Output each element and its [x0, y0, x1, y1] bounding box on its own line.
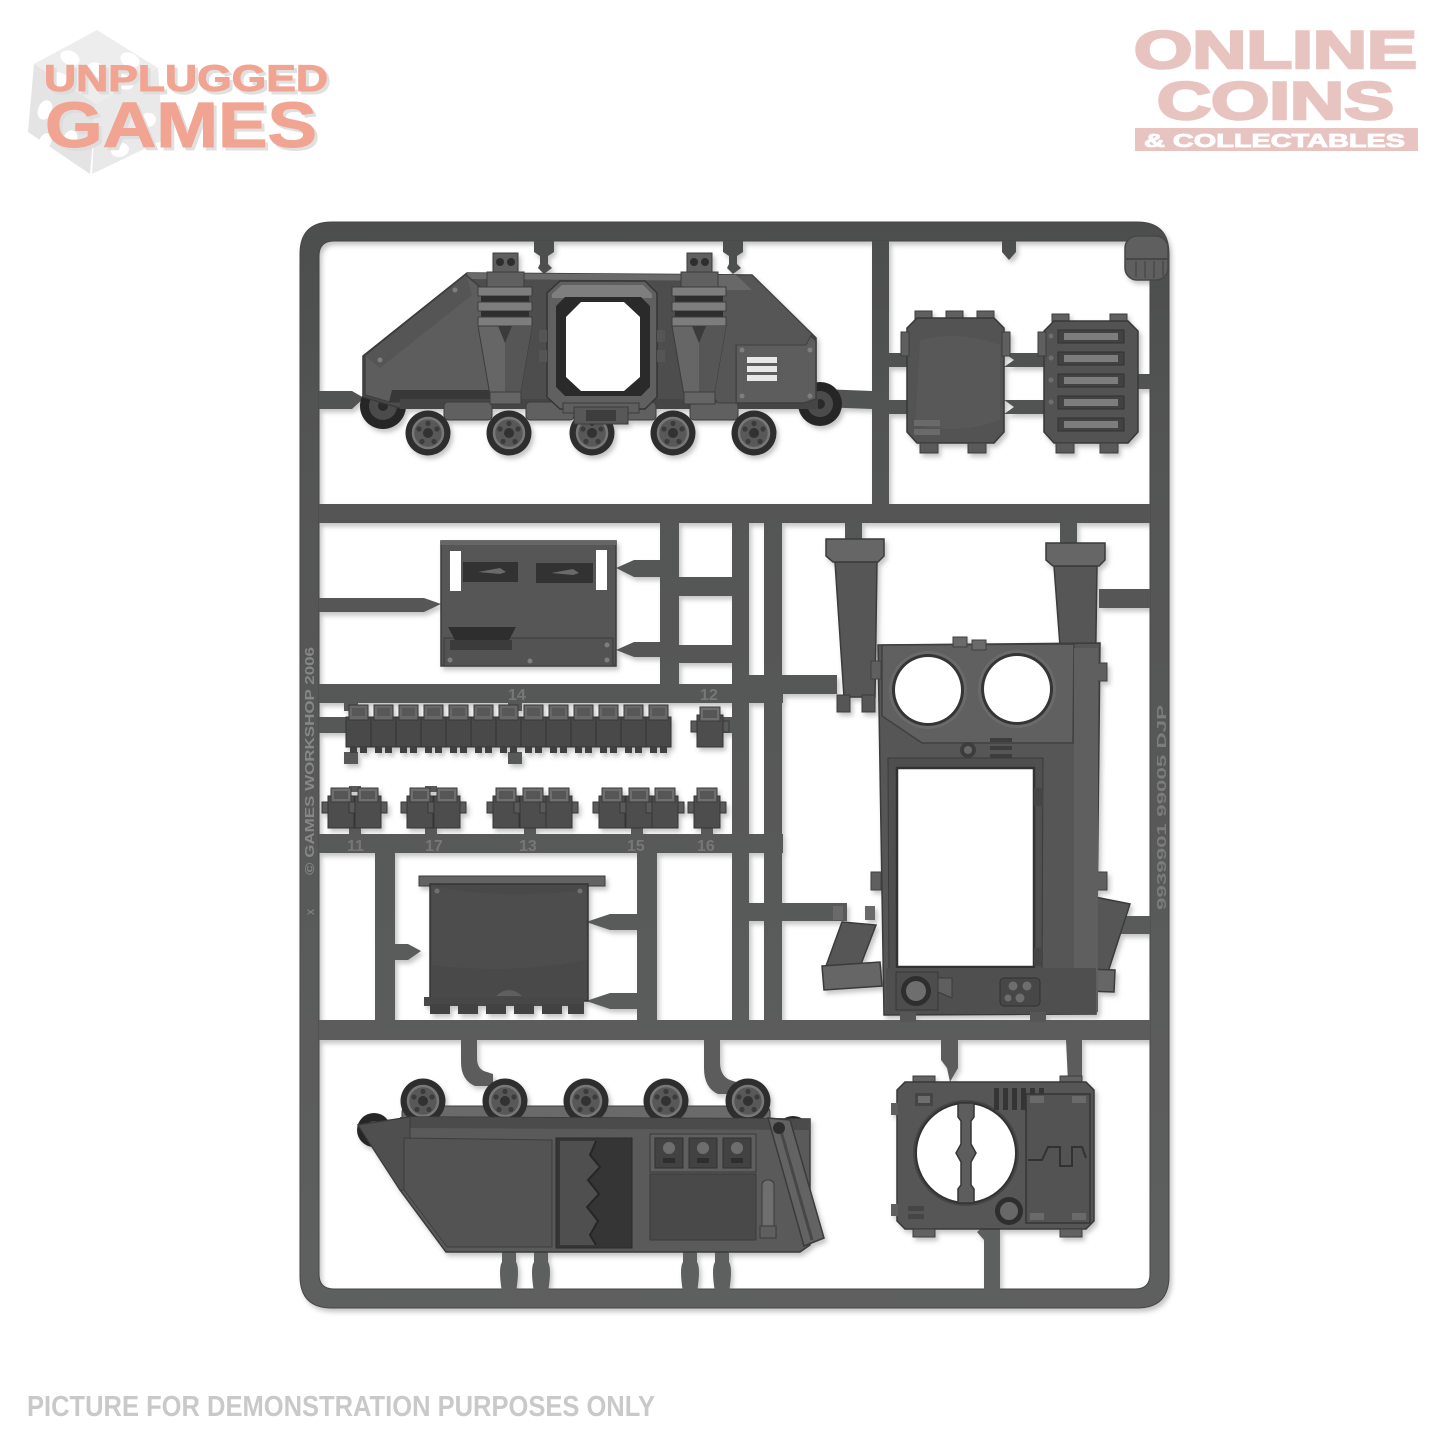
svg-text:COINS: COINS: [1157, 72, 1394, 131]
svg-text:14: 14: [508, 687, 526, 704]
svg-text:13: 13: [519, 838, 537, 855]
svg-text:PICTURE FOR DEMONSTRATION PURP: PICTURE FOR DEMONSTRATION PURPOSES ONLY: [27, 1391, 655, 1423]
svg-text:& COLLECTABLES: & COLLECTABLES: [1144, 131, 1405, 151]
svg-text:© GAMES WORKSHOP 2006: © GAMES WORKSHOP 2006: [302, 647, 317, 875]
svg-text:12: 12: [700, 687, 718, 704]
svg-text:16: 16: [697, 838, 715, 855]
svg-text:15: 15: [627, 838, 645, 855]
svg-text:17: 17: [425, 838, 443, 855]
svg-text:9939901 99005 DJP: 9939901 99005 DJP: [1154, 704, 1169, 910]
svg-text:GAMES: GAMES: [45, 89, 317, 161]
svg-text:11: 11: [347, 838, 364, 855]
svg-text:x: x: [303, 909, 317, 915]
